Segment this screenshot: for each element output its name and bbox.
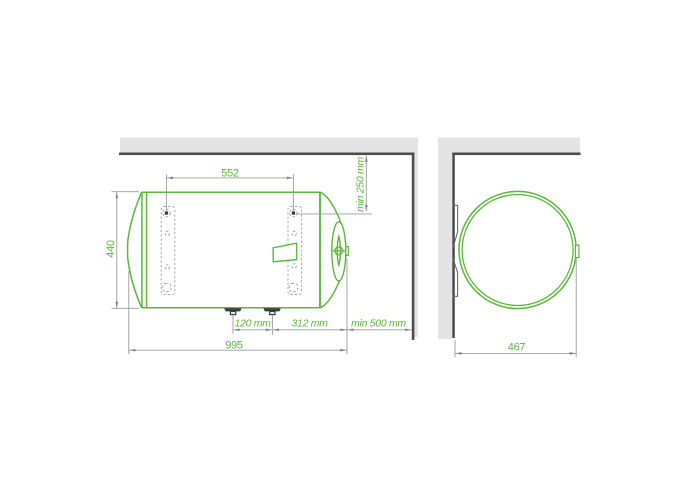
svg-text:120 mm: 120 mm [235, 317, 272, 329]
svg-text:312 mm: 312 mm [292, 317, 329, 329]
svg-text:467: 467 [508, 341, 526, 353]
svg-text:min 500 mm: min 500 mm [351, 317, 406, 329]
svg-text:552: 552 [221, 168, 239, 180]
svg-text:min 250 mm: min 250 mm [355, 157, 367, 212]
svg-text:440: 440 [105, 240, 117, 258]
svg-text:995: 995 [225, 339, 243, 351]
